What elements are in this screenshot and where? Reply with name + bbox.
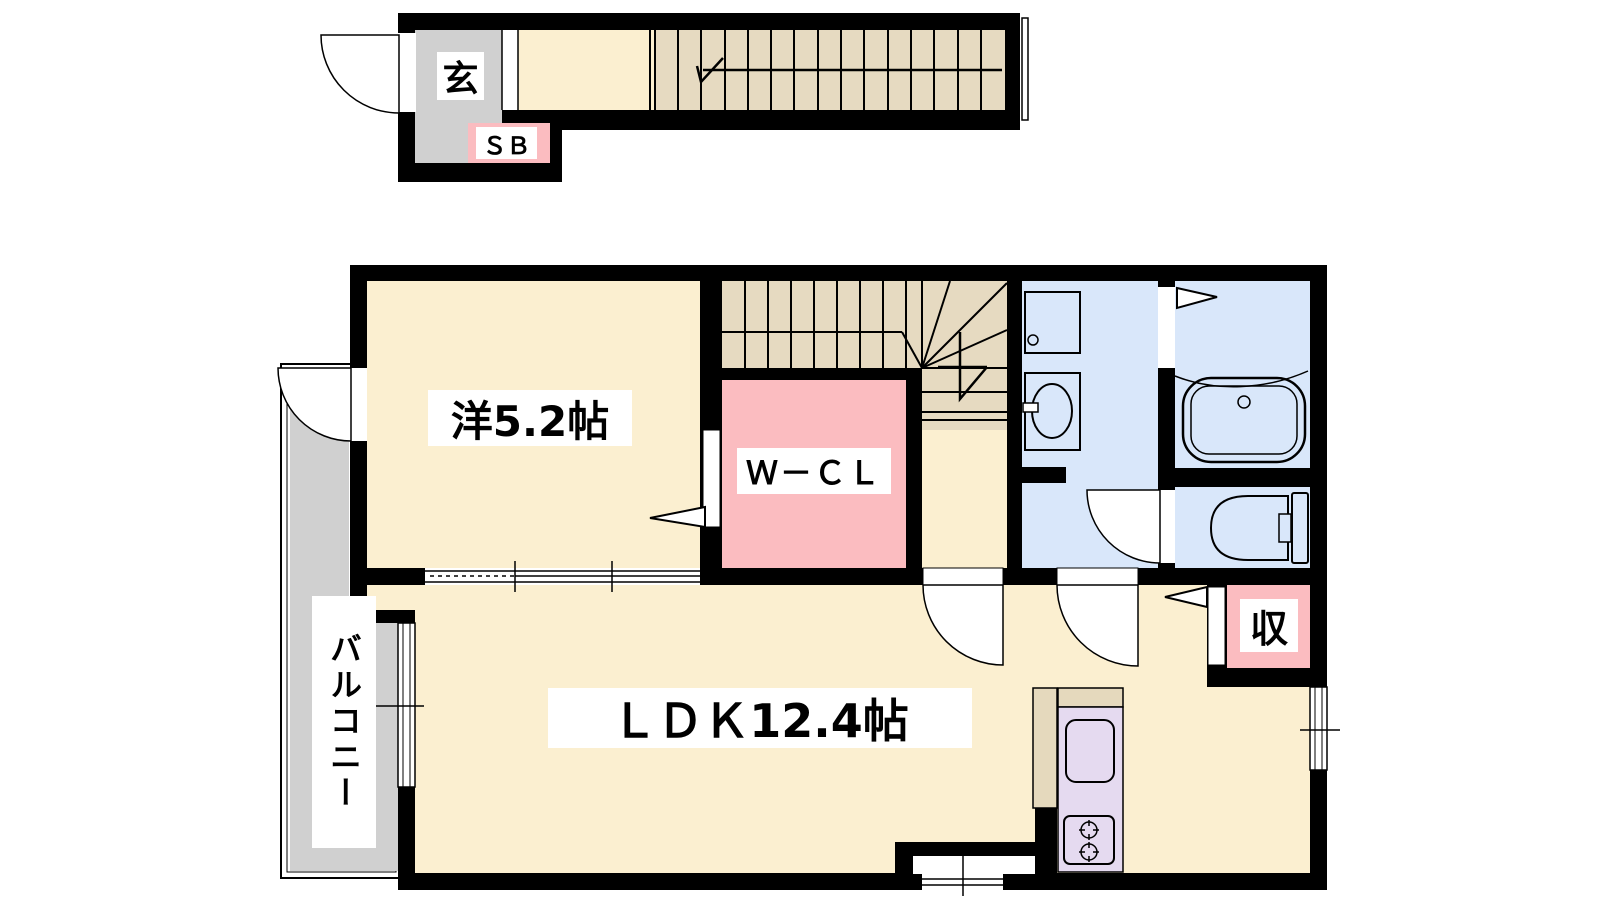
balcony-window [398,623,415,787]
kitchen-sink-icon [1066,720,1114,782]
ldk-right-window [1310,687,1327,770]
washroom-door-panel [1057,568,1138,585]
kitchen-counter [1033,688,1123,873]
entrance-label: 玄 [437,52,484,100]
stair-hall-floor [922,430,1007,568]
bath-door-gap [1158,287,1175,368]
shoe-box: ＳＢ [468,123,550,163]
stair-rail-line [1022,18,1028,120]
floor-plan-page: 玄 ＳＢ 洋5.2帖 Ｗ－ＣＬ ＬＤＫ12.4帖 収 バルコニー [0,0,1600,900]
storage-label: 収 [1240,599,1298,652]
western-room-label: 洋5.2帖 [428,390,632,446]
walk-in-closet-label: Ｗ－ＣＬ [737,448,891,494]
bathroom-floor [1175,281,1310,468]
shoe-box-label: ＳＢ [476,127,537,159]
hall-door-panel [923,568,1003,585]
entrance-stair-block [321,13,1028,182]
entrance-door-swing [321,35,399,113]
balcony-label: バルコニー [312,596,376,848]
stove-icon [1064,816,1114,864]
storage-door-panel [1208,587,1225,665]
western-balcony-door-swing [278,368,351,441]
ldk-label: ＬＤＫ12.4帖 [548,688,972,748]
entrance-door-gap [397,33,416,112]
western-balcony-door-gap [350,368,367,441]
